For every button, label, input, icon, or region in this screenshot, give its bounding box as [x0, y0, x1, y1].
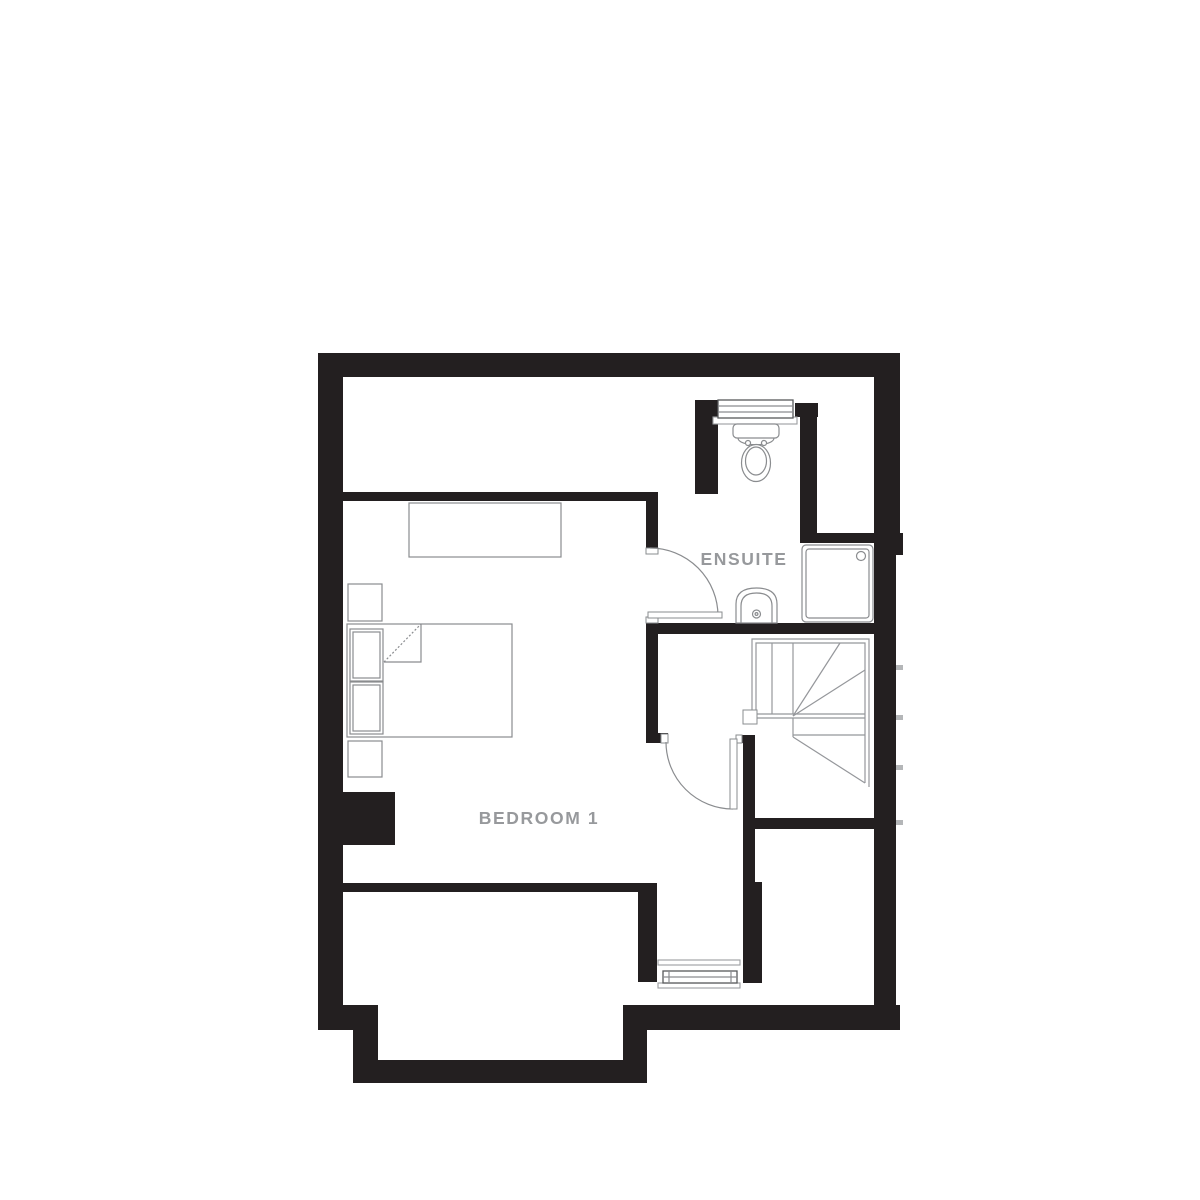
wall-segment: [646, 623, 658, 743]
bedside-outline: [348, 584, 382, 621]
shower-icon: [802, 545, 873, 622]
wall-segment: [743, 818, 877, 829]
wall-segment: [318, 353, 343, 1030]
wall-segment: [800, 533, 875, 543]
stair-winder: [793, 670, 865, 716]
wall-segment: [874, 555, 896, 1030]
bedroom-bay-window: [658, 960, 740, 988]
wall-segment: [695, 400, 718, 494]
wall-segment: [795, 403, 818, 417]
toilet-lid: [738, 438, 774, 445]
bedside-table-lower: [348, 741, 382, 777]
wall-segment: [800, 417, 817, 535]
wall-segment: [638, 883, 657, 982]
chimney-breast: [343, 792, 395, 845]
bedside-outline: [348, 741, 382, 777]
wall-segment: [318, 1005, 378, 1030]
wall-segment: [743, 735, 755, 882]
shower-tray: [802, 545, 873, 622]
window-sill: [658, 983, 740, 988]
bedside-table-upper: [348, 584, 382, 621]
wall-segment: [353, 1030, 378, 1083]
toilet-cistern: [733, 424, 779, 438]
wall-segment: [646, 492, 658, 548]
bedroom-door: [661, 734, 742, 809]
wall-tick: [896, 665, 903, 670]
newel-post: [743, 710, 757, 724]
wardrobe: [409, 503, 561, 557]
winder-staircase: [743, 639, 869, 787]
wall-segment: [353, 1060, 647, 1083]
toilet-hinge: [746, 441, 751, 446]
wardrobe-outline: [409, 503, 561, 557]
double-bed: [347, 624, 512, 737]
toilet-hinge: [762, 441, 767, 446]
toilet-icon: [733, 424, 779, 482]
wall-segment: [874, 353, 900, 555]
stair-string-outer: [752, 639, 869, 787]
door-jamb: [661, 734, 668, 743]
window-sill: [658, 960, 740, 965]
wall-tick: [896, 765, 903, 770]
wall-segment: [646, 623, 875, 634]
stair-winder: [793, 643, 840, 716]
ensuite-window: [713, 400, 797, 424]
wall-segment: [898, 533, 903, 555]
door-leaf: [730, 739, 737, 809]
wall-segment: [318, 353, 900, 377]
wall-segment: [343, 883, 657, 892]
party-wall-ticks: [896, 665, 903, 825]
bedroom-label: BEDROOM 1: [479, 808, 599, 828]
door-leaf: [648, 612, 722, 618]
floor-plan-page: BEDROOM 1 ENSUITE: [0, 0, 1200, 1200]
wall-segment: [623, 1005, 900, 1030]
wall-segment: [743, 882, 762, 983]
stair-winder: [793, 737, 865, 783]
wall-tick: [896, 715, 903, 720]
door-jamb: [646, 548, 658, 554]
door-swing-arc: [666, 742, 733, 809]
wall-tick: [896, 820, 903, 825]
ensuite-label: ENSUITE: [700, 549, 787, 569]
basin-icon: [736, 588, 777, 623]
wall-segment: [623, 1005, 647, 1060]
wall-segment: [343, 492, 658, 501]
window-frame: [718, 400, 793, 418]
floor-plan-svg: BEDROOM 1 ENSUITE: [0, 0, 1200, 1200]
